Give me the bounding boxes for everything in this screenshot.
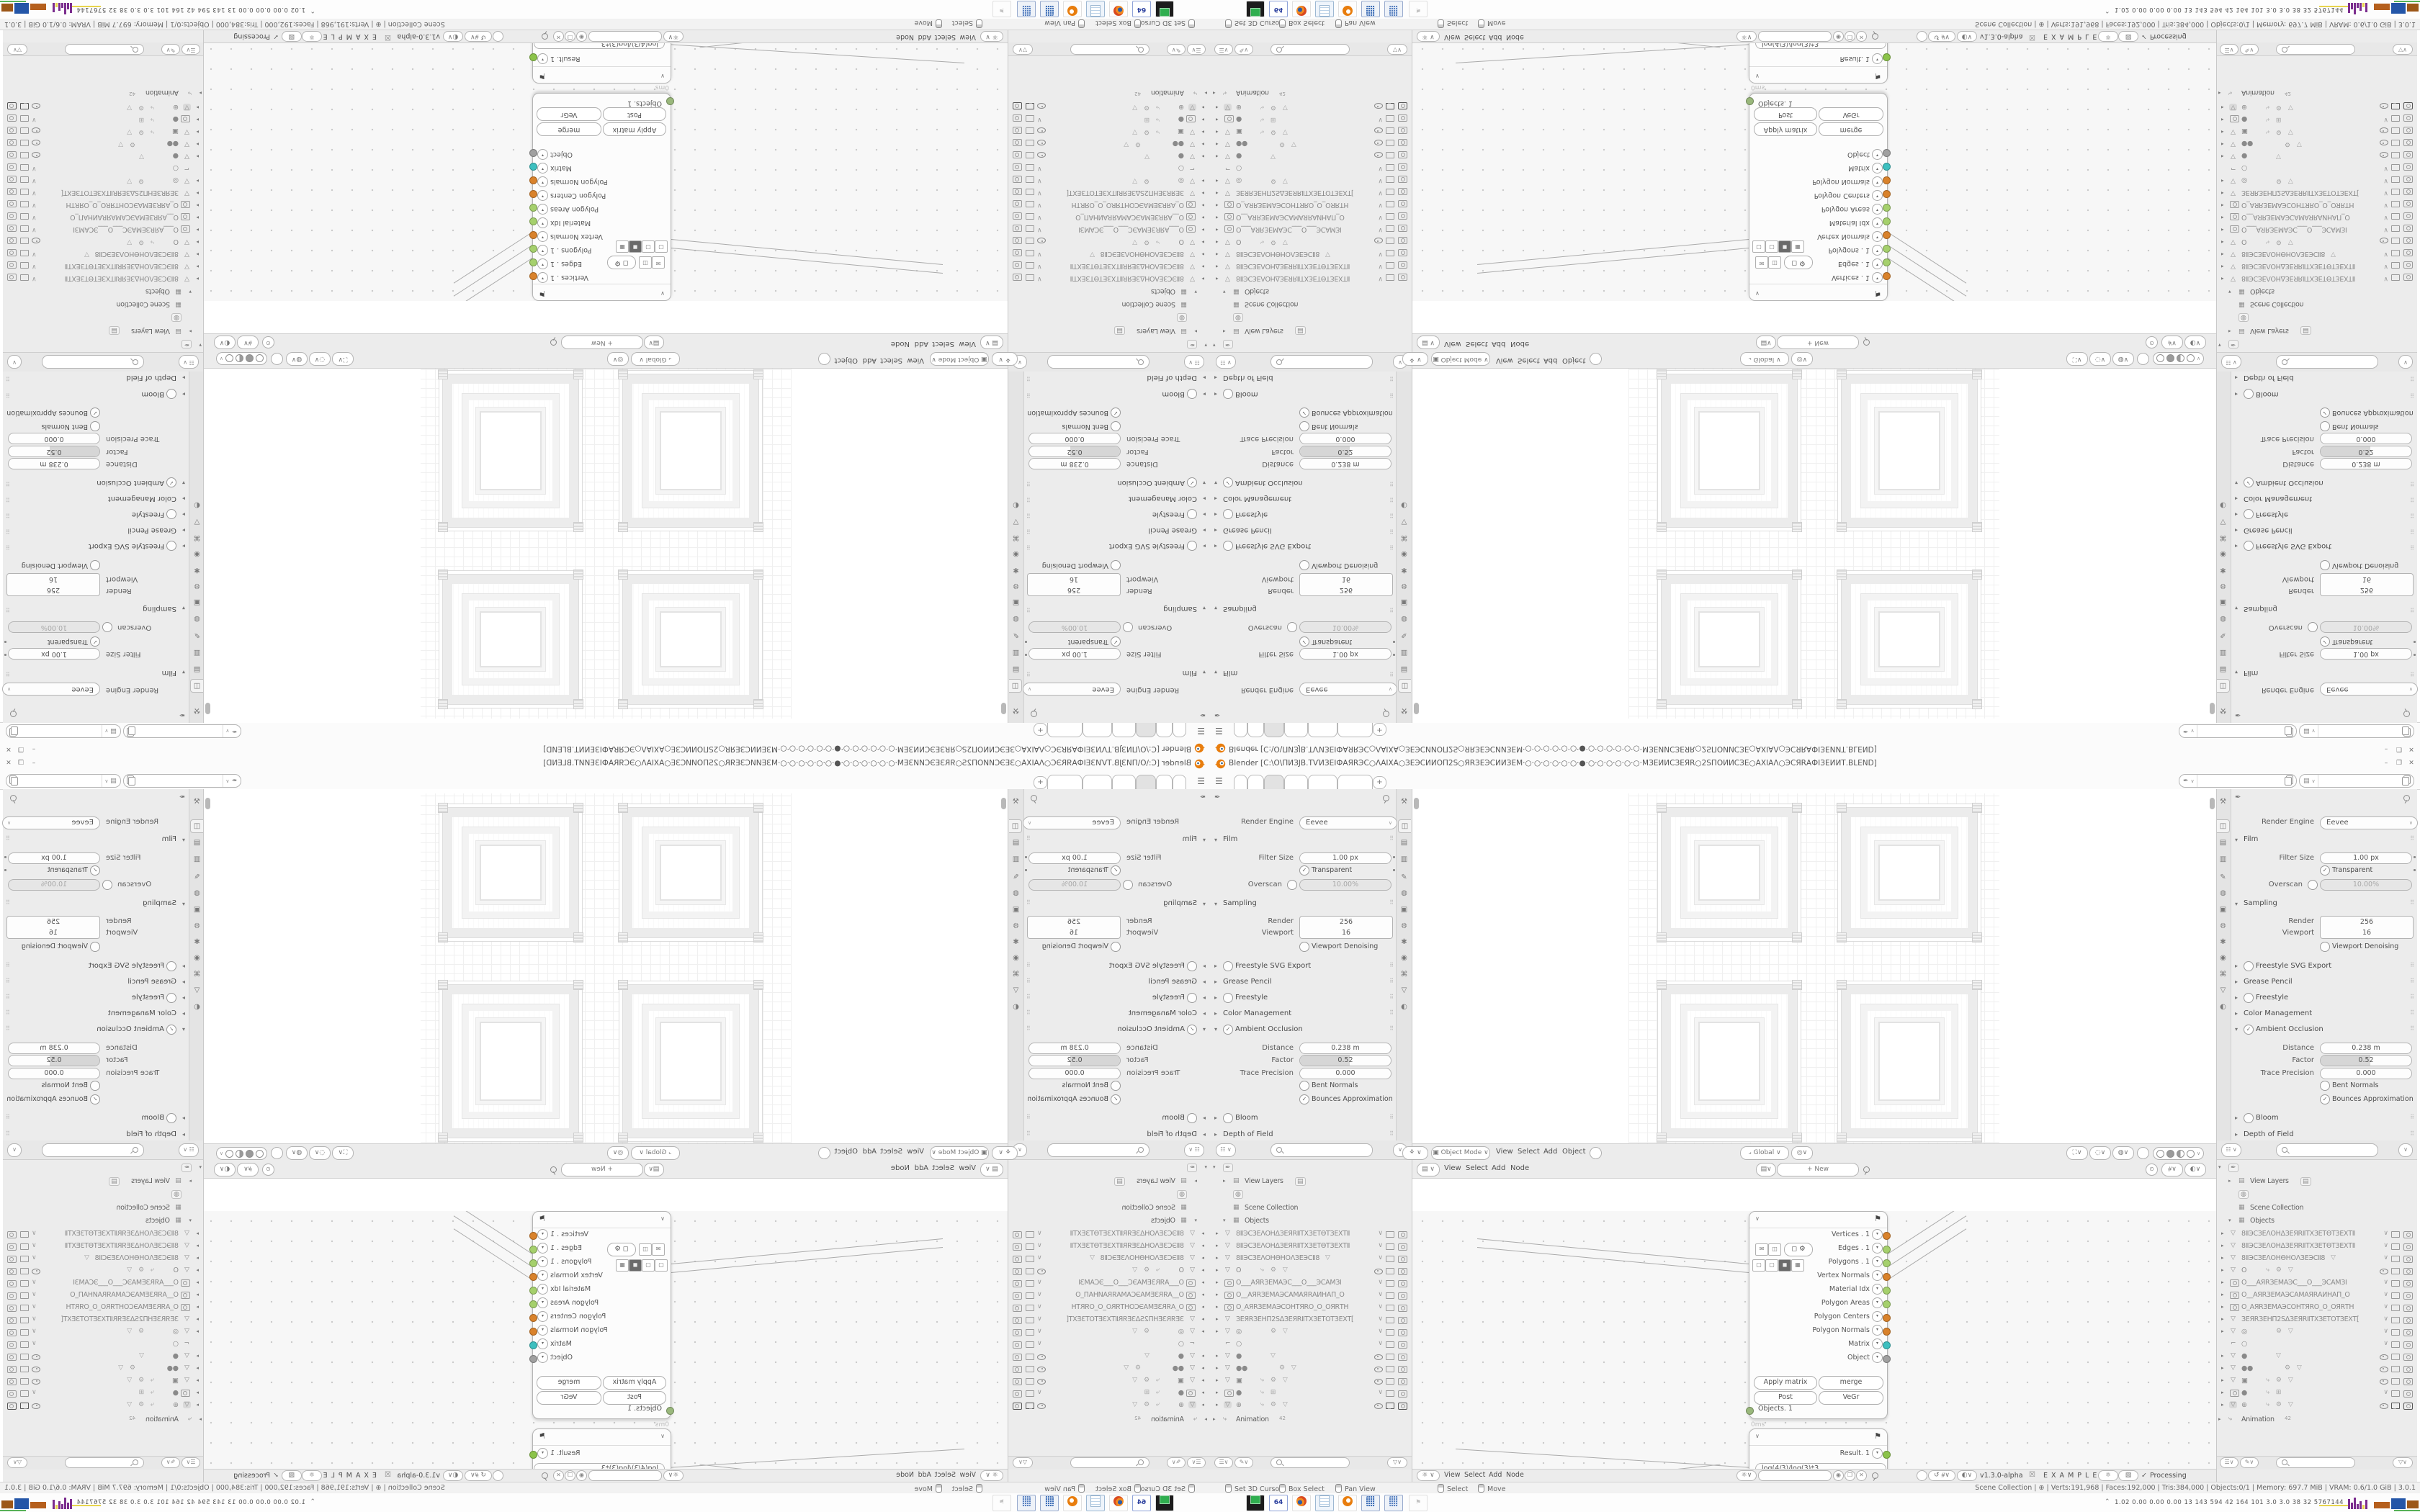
pin-icon[interactable] [2403,711,2410,717]
object-row[interactable]: ▸●⤷ ⊞∨ [1008,113,1210,125]
chevron-down-icon[interactable]: ∨ [32,1291,37,1298]
pin-icon[interactable] [1872,33,1878,40]
result-node[interactable]: ∨ ⚑ Result. 1▾ log(4/3)/log(3)*3 ⟳ -1 0 … [532,1428,671,1469]
object-row[interactable]: ▸O__АЯRЗЕМАЭСАМАЯRАИНАП_O∨ [2215,1290,2417,1301]
object-row[interactable]: ▸▽▣⤷ ⚙ ▽ [1008,1375,1210,1387]
monitor-icon[interactable] [2391,1305,2400,1311]
camera-toggle-icon[interactable] [1398,1292,1407,1300]
monitor-icon[interactable] [1386,115,1394,122]
chevron-down-icon[interactable]: ∨ [2383,263,2388,270]
sidebar-collapsed-tab[interactable] [205,798,210,809]
monitor-icon[interactable] [1026,140,1034,146]
scene-tab-icon[interactable]: ✎ [1398,871,1410,883]
object-row-active[interactable]: ▸▽⊕⤷ ⚙ ▽ [1210,101,1412,112]
eye-icon[interactable] [32,127,40,133]
eye-icon[interactable] [1037,238,1046,243]
output-tab-icon[interactable]: ▤ [1398,837,1410,849]
ao-factor-slider[interactable]: 0.52 [8,1055,100,1066]
chevron-down-icon[interactable]: ∨ [2383,226,2388,233]
ao-section[interactable]: Ambient Occlusion [97,479,164,487]
overscan-checkbox[interactable] [1287,622,1297,632]
bloom-checkbox[interactable] [1187,389,1197,399]
monitor-icon[interactable] [2391,164,2400,171]
object-row[interactable]: ⌐○∨ [1210,162,1412,174]
camera-toggle-icon[interactable] [1398,176,1407,183]
taskbar-calculator-icon[interactable] [1040,1495,1059,1511]
grease-pencil-section[interactable]: Grease Pencil [127,978,176,986]
object-row[interactable]: ▸O_АЯRЗЕМАЭСОНТЯRО_O_ОЯRТН∨ [1210,1302,1412,1313]
render-samples-field[interactable]: 256 [1299,916,1393,928]
socket[interactable] [1883,1300,1891,1308]
ao-checkbox[interactable]: ✓ [166,477,176,487]
editor-type-button[interactable]: ▤ ∨ [980,336,1003,349]
grid-mode-button[interactable]: ▦ [1791,240,1804,253]
copy-icon[interactable]: ❐ [1845,1470,1855,1481]
monitor-icon[interactable] [1026,238,1034,244]
orientation-select[interactable]: ⟓ Global ∨ [631,352,680,366]
render-tab-icon[interactable]: ◫ [1398,819,1411,833]
view-layers-row[interactable]: ▸ ▤ View Layers ▤ [3,325,205,336]
editor-type-button[interactable]: ▤∨ [644,1163,664,1176]
workspace-tab[interactable] [1247,775,1264,789]
editor-type-button[interactable]: ⚘ ∨ [992,1146,1018,1160]
viewlayer-name-field[interactable] [21,725,102,737]
scene-selector[interactable]: ✒∨ [123,724,241,738]
camera-toggle-icon[interactable] [2403,1366,2413,1373]
world-tab-icon[interactable]: ◍ [2217,887,2229,899]
overscan-checkbox[interactable] [2308,622,2318,632]
film-section[interactable]: Film [1183,669,1197,677]
freestyle-svg-checkbox[interactable] [2244,541,2254,551]
pin-icon[interactable] [1031,711,1037,717]
output-object[interactable]: Object▾ [1847,1352,1883,1366]
render-engine-select[interactable]: Eevee∨ [1023,683,1121,696]
objects-input-socket[interactable] [1746,1407,1754,1415]
object-row[interactable]: ▸O_АЯRЗЕМАЭСОНТЯRО_O_ОЯRТН∨ [2215,199,2417,210]
pin-icon[interactable] [550,1166,557,1173]
chevron-down-icon[interactable]: ∨ [1037,251,1042,258]
ao-distance-field[interactable]: 0.238 m [1028,458,1121,469]
filter-search-input[interactable] [1270,44,1350,55]
physics-tab-icon[interactable]: ◉ [2217,548,2229,560]
camera-toggle-icon[interactable] [7,1292,17,1300]
camera-toggle-icon[interactable] [7,1390,17,1398]
freestyle-svg-section[interactable]: Freestyle SVG Export [1109,962,1185,970]
viewport-3d[interactable] [204,789,1008,1143]
gizmo-button[interactable]: ⛶∨ [2066,1146,2088,1160]
camera-toggle-icon[interactable] [2403,1354,2413,1361]
camera-toggle-icon[interactable] [1013,1280,1022,1287]
back-snap-button[interactable]: ↺ ⧣∨ [465,1470,492,1481]
output-matrix[interactable]: Matrix▾ [1848,1338,1883,1352]
menu-add[interactable]: Add [915,1164,928,1172]
output-polygon-centers[interactable]: Polygon Centers▾ [537,1311,606,1325]
camera-toggle-icon[interactable] [2403,1305,2413,1312]
taskbar-blender-icon[interactable] [1338,1,1357,17]
pivot-button[interactable] [818,353,830,365]
sampling-section[interactable]: Sampling [2244,605,2277,613]
workspace-tab-active[interactable] [1264,723,1284,737]
object-row[interactable]: ▸▽8ⅡЭСЗЕΛОНѲНОΛЗЕЭСⅡ8▽∨ [3,1253,205,1264]
chevron-down-icon[interactable]: ∨ [1378,116,1383,123]
menu-view[interactable]: View [1496,1148,1513,1156]
monitor-icon[interactable] [2391,201,2400,207]
overlay-button[interactable]: ◐∨ [2184,336,2206,349]
workspace-tab[interactable] [1112,723,1136,737]
render-samples-field[interactable]: 256 [2320,584,2414,596]
toolbar-collapsed-tab[interactable] [1414,798,1419,809]
tree-select-button[interactable]: ⚛∨ [663,1470,684,1481]
pin-icon[interactable] [1031,795,1037,801]
modifiers-tab-icon[interactable]: ⚙ [1010,920,1022,932]
output-material-idx[interactable]: Material Idx▾ [1829,1284,1883,1297]
eye-icon[interactable] [1374,1403,1383,1409]
shading-mode-group[interactable]: ∨ [216,1147,267,1160]
monitor-icon[interactable] [1386,140,1394,146]
menu-select[interactable]: Select [932,340,954,348]
camera-toggle-icon[interactable] [1398,1390,1407,1398]
menu-node[interactable]: Node [896,1471,914,1479]
output-object[interactable]: Object▾ [537,1352,573,1366]
formula-field[interactable]: log(4/3)/log(3)*3 [1755,1463,1886,1469]
freestyle-svg-checkbox[interactable] [2244,961,2254,971]
chevron-down-icon[interactable]: ∨ [2383,1389,2388,1396]
object-row[interactable]: ▸O_АЯRЗЕМАЭСОНТЯRО_O_ОЯRТН∨ [1008,1302,1210,1313]
camera-toggle-icon[interactable] [2403,225,2413,232]
result-output[interactable]: Result. 1▾ [1840,50,1883,64]
monitor-icon[interactable] [1386,250,1394,256]
chevron-down-icon[interactable]: ∨ [2383,1315,2388,1323]
sampling-section[interactable]: Sampling [2244,899,2277,907]
monitor-icon[interactable] [20,164,29,171]
monitor-icon[interactable] [2391,1268,2400,1274]
data-tab-icon[interactable]: ▽ [1398,984,1410,996]
render-tab-icon[interactable]: ◫ [1009,819,1022,833]
camera-toggle-icon[interactable] [1013,1366,1022,1373]
output-tab-icon[interactable]: ▤ [2217,663,2229,675]
object-row[interactable]: ▸▽◎⚙ ▽∨ [3,174,205,186]
bloom-checkbox[interactable] [166,1113,176,1123]
grease-pencil-section[interactable]: Grease Pencil [1148,526,1197,534]
chevron-down-icon[interactable]: ∨ [2383,1328,2388,1335]
menu-view[interactable]: View [959,340,976,348]
object-row[interactable]: ▸▽ЗЕЯRЗЕНП2SΔЗЕЯRⅡТХЗЕТОТЗЕХТ[∨ [2215,1314,2417,1326]
eye-icon[interactable] [2380,152,2388,158]
scene-selector[interactable]: ✒∨ [2179,774,2297,788]
chevron-down-icon[interactable]: ∨ [1037,165,1042,172]
menu-view[interactable]: View [1444,33,1461,41]
monitor-icon[interactable] [1386,1390,1394,1397]
collapse-icon[interactable]: ∨ [1755,290,1760,297]
chevron-down-icon[interactable]: ∨ [1378,226,1383,233]
menu-node[interactable]: Node [1506,33,1524,41]
result-socket[interactable] [529,1451,537,1459]
socket[interactable] [1883,1328,1891,1336]
animation-row[interactable]: ▸ ⤷ Animation 42 [3,1414,205,1426]
scene-icon-row[interactable]: ◍ [2215,1189,2417,1200]
overlay-button[interactable]: ◐∨ [214,336,236,349]
chevron-down-icon[interactable]: ∨ [32,1279,37,1286]
monitor-icon[interactable] [2391,213,2400,220]
camera-toggle-icon[interactable] [1013,261,1022,269]
object-row[interactable]: ▸O__АЯRЗЕМАЭСАМАЯRАИНАП_O∨ [2215,211,2417,222]
ao-factor-slider[interactable]: 0.52 [1299,1055,1391,1066]
render-engine-select[interactable]: Eevee∨ [1299,816,1397,829]
constraints-tab-icon[interactable]: ⌘ [1398,968,1410,981]
brush-mode-button[interactable]: ✎∨ [161,1457,180,1468]
x-button[interactable]: ✉ [1755,256,1768,269]
outliner-display-mode-button[interactable]: ☷ ∨ [1184,355,1204,369]
object-row[interactable]: ▸▽8ⅡЭСЗЕΛОНΔЗЕЯRⅡТХЗЕТѲТЗЕХТⅡ∨ [3,1228,205,1240]
bloom-checkbox[interactable] [1187,1113,1197,1123]
particles-tab-icon[interactable]: ✱ [191,936,203,948]
monitor-icon[interactable] [20,189,29,195]
chevron-down-icon[interactable]: ∨ [32,177,37,184]
output-edges[interactable]: Edges . 1▾ [1838,1243,1883,1256]
camera-toggle-icon[interactable] [1398,1341,1407,1349]
camera-toggle-icon[interactable] [1398,1354,1407,1361]
camera-toggle-icon[interactable] [7,102,17,109]
object-row[interactable]: ▸▽8ⅡЭСЗЕΛОНΔЗЕЯRⅡТХЗЕТѲТЗЕХТⅡ∨ [1008,1228,1210,1240]
chevron-down-icon[interactable]: ∨ [1378,1303,1383,1310]
socket[interactable] [529,1273,537,1281]
eye-icon[interactable] [1037,127,1046,133]
monitor-icon[interactable] [1386,213,1394,220]
modifiers-tab-icon[interactable]: ⚙ [1010,580,1022,592]
menu-add[interactable]: Add [915,340,928,348]
chevron-down-icon[interactable]: ∨ [2383,251,2388,258]
freestyle-section[interactable]: Freestyle [132,994,164,1002]
overscan-checkbox[interactable] [1123,622,1133,632]
objects-input-socket[interactable] [1746,97,1754,105]
objects-collection-row[interactable]: ▾ ▦ Objects [3,1215,205,1227]
objects-collection-row[interactable]: ▾ ▦ Objects [1008,285,1210,297]
eye-icon[interactable] [32,1403,40,1409]
particles-tab-icon[interactable]: ✱ [1010,564,1022,576]
animation-row[interactable]: ▸ ⤷ Animation 42 [1008,1414,1210,1426]
image-icon[interactable]: ▤ [1295,326,1306,335]
object-row[interactable]: ▸O___АЯRЗЕМАЭС___O___ЭСАМЗІ∨ [1008,1277,1210,1289]
chevron-down-icon[interactable]: ∨ [2383,202,2388,209]
camera-toggle-icon[interactable] [1013,1341,1022,1349]
viewport-samples-field[interactable]: 16 [1027,927,1121,939]
formula-field[interactable]: log(4/3)/log(3)*3 [534,1463,665,1469]
object-row[interactable]: ▸O_АЯRЗЕМАЭСОНТЯRО_O_ОЯRТН∨ [1008,199,1210,210]
workspace-tab[interactable] [1156,723,1173,737]
grid-mode-button[interactable]: ▦ [1791,1259,1804,1272]
camera-toggle-icon[interactable] [7,249,17,256]
sampling-section[interactable]: Sampling [1163,605,1197,613]
empty-toggle[interactable] [1917,31,1927,42]
minimize-button[interactable]: – [2381,744,2391,754]
bent-normals-checkbox[interactable] [1299,1081,1309,1091]
workspace-tab[interactable] [1112,775,1136,789]
viewlayer-selector[interactable]: ▤∨ [6,774,121,788]
list-mode-button[interactable]: ☰∨ [2220,1457,2238,1468]
camera-toggle-icon[interactable] [1398,1243,1407,1251]
ao-checkbox[interactable]: ✓ [2244,1025,2254,1035]
menu-view[interactable]: View [1496,356,1513,364]
chevron-down-icon[interactable]: ∨ [2383,1291,2388,1298]
monitor-icon[interactable] [2391,262,2400,269]
collapse-icon[interactable]: ∨ [660,290,665,297]
filter-funnel-button[interactable]: ▽∨ [2393,1457,2413,1468]
workspace-tab-active[interactable] [1136,775,1156,789]
dof-section[interactable]: Depth of Field [1147,374,1197,382]
object-row-active[interactable]: ▸▽⊕⤷ ⚙ ▽ [3,101,205,112]
particles-tab-icon[interactable]: ✱ [191,564,203,576]
filter-funnel-button[interactable]: ▽∨ [1013,1457,1033,1468]
copy-icon[interactable] [2402,727,2409,736]
camera-toggle-icon[interactable] [7,1317,17,1324]
viewport-denoising-checkbox[interactable] [1299,942,1309,952]
merge-button[interactable]: merge [537,122,601,136]
sidebar-collapsed-tab[interactable] [2210,703,2215,714]
view-layers-row[interactable]: ▸ ▤ View Layers ▤ [2215,325,2417,336]
world-tab-icon[interactable]: ◍ [191,613,203,625]
menu-add[interactable]: Add [1489,33,1502,41]
copy-icon[interactable] [11,777,18,786]
link-toggle[interactable]: ◻ ⚙ [1784,256,1813,269]
tree-name-field[interactable] [1758,1470,1832,1481]
tree-name-field[interactable] [1758,31,1832,42]
pin-icon[interactable] [542,1472,548,1479]
socket[interactable] [1883,204,1891,212]
monitor-icon[interactable] [1386,1305,1394,1311]
render-tab-icon[interactable]: ◫ [190,819,203,833]
trace-precision-field[interactable]: 0.000 [1299,1068,1391,1079]
world-tab-icon[interactable]: ◍ [191,887,203,899]
object-row[interactable]: ▸▽▣⤷ ⚙ ▽ [2215,125,2417,137]
color-management-section[interactable]: Color Management [2244,495,2312,503]
camera-toggle-icon[interactable] [1013,127,1022,134]
edges-mode-button[interactable]: ▢ [642,1259,655,1272]
menu-icon[interactable]: ☰ [1215,776,1223,786]
render-samples-field[interactable]: 256 [6,584,100,596]
camera-toggle-icon[interactable] [1013,139,1022,146]
object-row[interactable]: ▸▽8ⅡЭСЗЕΛОНѲНОΛЗЕЭСⅡ8▽∨ [1210,1253,1412,1264]
workspace-tab-active[interactable] [1136,723,1156,737]
workspace-tab[interactable] [1234,723,1247,737]
socket[interactable] [529,190,537,198]
ao-factor-slider[interactable]: 0.52 [1028,1055,1121,1066]
object-row[interactable]: ▸O__АЯRЗЕМАЭСАМАЯRАИНАП_O∨ [3,211,205,222]
object-row[interactable]: ▸▽O⤷ ⚙ ▽ [1008,1265,1210,1277]
get-objects-data-node[interactable]: ∨ ⚑ ✉ ◫ ◻ ⚙ ▢ ▢ ◼ ▦ Vertices . 1▾ Edges … [1749,93,1888,301]
freestyle-svg-checkbox[interactable] [166,961,176,971]
chevron-down-icon[interactable]: ∨ [1037,116,1042,123]
camera-toggle-icon[interactable] [1398,114,1407,122]
render-engine-select[interactable]: Eevee∨ [1299,683,1397,696]
camera-toggle-icon[interactable] [1013,1292,1022,1300]
orientation-select[interactable]: ⟓ Global ∨ [631,1146,680,1160]
eye-icon[interactable] [1037,1379,1046,1385]
shading-mode-group[interactable]: ∨ [2153,352,2204,365]
monitor-icon[interactable] [1386,201,1394,207]
monitor-icon[interactable] [2391,189,2400,195]
monitor-icon[interactable] [20,1366,29,1372]
snap-toggle-icon[interactable]: ⊙ [262,336,274,348]
object-row[interactable]: ▸▽●▽ [1008,150,1210,161]
socket-polygons[interactable] [529,245,537,253]
trace-precision-field[interactable]: 0.000 [1028,433,1121,444]
camera-toggle-icon[interactable] [2403,1317,2413,1324]
empty-toggle[interactable] [493,1470,503,1481]
ao-checkbox[interactable]: ✓ [1223,1025,1233,1035]
monitor-icon[interactable] [2391,103,2400,109]
grease-pencil-section[interactable]: Grease Pencil [1148,978,1197,986]
physics-tab-icon[interactable]: ◉ [1010,548,1022,560]
output-tab-icon[interactable]: ▤ [2217,837,2229,849]
taskbar-disabled-icon[interactable]: ⚑ [992,1,1011,17]
toolbar-collapsed-tab[interactable] [1001,703,1006,714]
data-tab-icon[interactable]: ▽ [1010,984,1022,996]
render-engine-select[interactable]: Eevee∨ [2320,683,2418,696]
monitor-icon[interactable] [20,103,29,109]
monitor-icon[interactable] [2391,127,2400,134]
socket[interactable] [529,1355,537,1363]
object-row[interactable]: ▸O___АЯRЗЕМАЭС___O___ЭСАМЗІ∨ [1210,223,1412,235]
camera-toggle-icon[interactable] [2403,102,2413,109]
freestyle-section[interactable]: Freestyle [2256,994,2288,1002]
freestyle-svg-checkbox[interactable] [1187,541,1197,551]
scene-tab-icon[interactable]: ✎ [1010,871,1022,883]
eye-icon[interactable] [1374,238,1383,243]
edges-mode-button[interactable]: ▢ [1765,240,1778,253]
menu-add[interactable]: Add [918,33,931,41]
modifiers-tab-icon[interactable]: ⚙ [1398,920,1410,932]
camera-toggle-icon[interactable] [2403,176,2413,183]
tree-select-button[interactable]: ⚛∨ [663,31,684,42]
output-edges[interactable]: Edges . 1▾ [537,1243,582,1256]
bounces-checkbox[interactable]: ✓ [90,1094,100,1104]
transparent-checkbox[interactable]: ✓ [1111,865,1121,876]
menu-select[interactable]: Select [880,1148,902,1156]
workspace-tab[interactable] [1083,775,1112,789]
monitor-icon[interactable] [1386,1256,1394,1262]
grease-pencil-section[interactable]: Grease Pencil [127,526,176,534]
color-management-section[interactable]: Color Management [1223,495,1291,503]
monitor-icon[interactable] [1386,225,1394,232]
monitor-icon[interactable] [1026,201,1034,207]
render-samples-field[interactable]: 256 [2320,916,2414,928]
render-engine-select[interactable]: Eevee∨ [2,816,100,829]
monitor-icon[interactable] [20,1317,29,1323]
orientation-select[interactable]: ⟓ Global ∨ [1740,352,1789,366]
add-workspace-button[interactable]: + [1373,723,1386,736]
taskbar-terminal-icon[interactable] [1246,1,1265,17]
camera-toggle-icon[interactable] [1013,151,1022,158]
film-section[interactable]: Film [2244,835,2258,843]
ao-factor-slider[interactable]: 0.52 [2320,446,2412,457]
objects-collection-row[interactable]: ▾ ▦ Objects [1210,285,1412,297]
shield-icon[interactable]: ◉ [1833,31,1844,42]
camera-toggle-icon[interactable] [2403,237,2413,244]
output-edges[interactable]: Edges . 1▾ [1838,256,1883,269]
overscan-field[interactable]: 10.00% [1299,621,1391,633]
chevron-down-icon[interactable]: ∨ [32,116,37,123]
freestyle-svg-checkbox[interactable] [1223,541,1233,551]
taskbar-notepad-icon[interactable] [1315,1495,1334,1511]
render-samples-field[interactable]: 256 [1299,584,1393,596]
list-mode-button[interactable]: ☰∨ [181,44,200,55]
tool-tab-icon[interactable]: ⚒ [1010,704,1022,716]
chevron-down-icon[interactable]: ∨ [1378,263,1383,270]
camera-button[interactable]: ◫ [1768,1243,1781,1256]
freestyle-section[interactable]: Freestyle [2256,510,2288,518]
monitor-icon[interactable] [2391,1231,2400,1238]
tool-tab-icon[interactable]: ⚒ [1010,796,1022,808]
